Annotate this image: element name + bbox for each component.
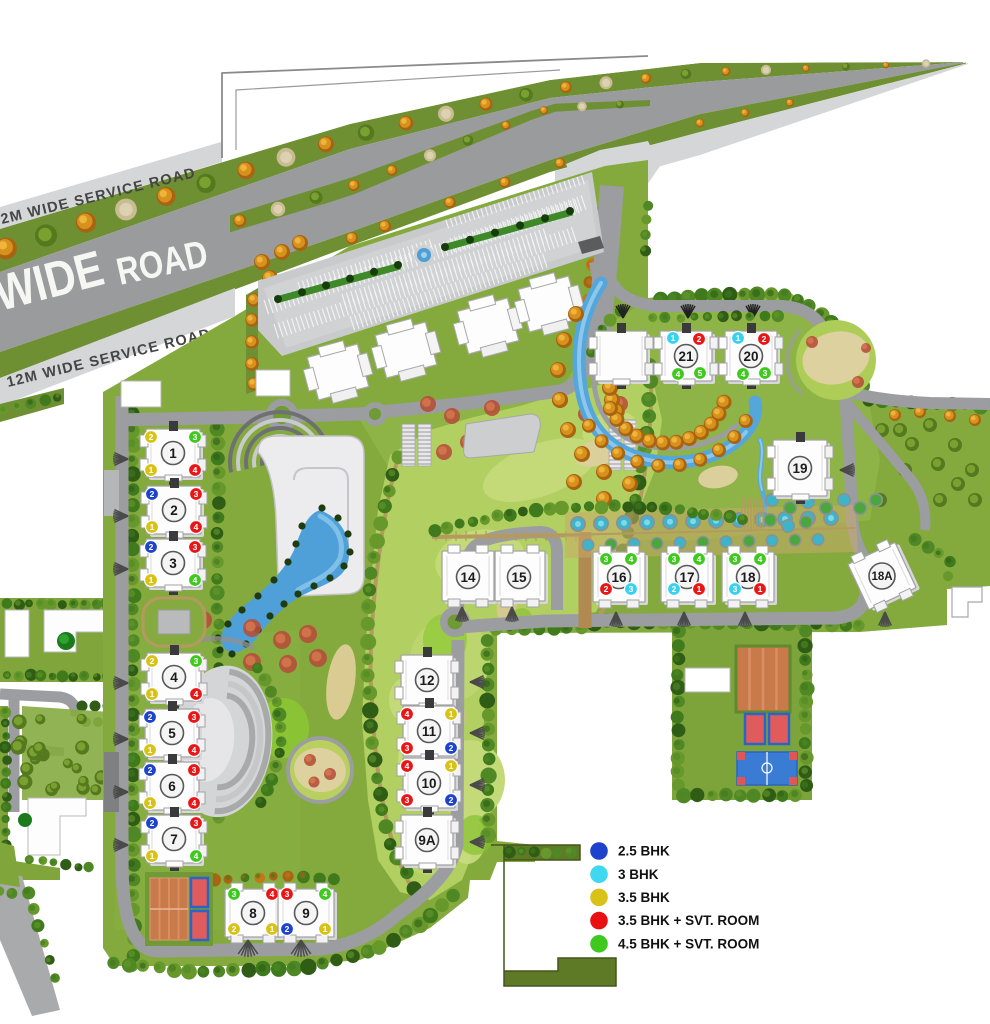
svg-text:10: 10 [421, 776, 436, 791]
svg-text:3.5 BHK + SVT. ROOM: 3.5 BHK + SVT. ROOM [618, 913, 759, 928]
svg-text:2: 2 [148, 712, 153, 722]
svg-text:1: 1 [671, 333, 676, 343]
svg-text:2: 2 [150, 489, 155, 499]
svg-text:1: 1 [758, 584, 763, 594]
svg-text:1: 1 [169, 446, 177, 461]
svg-text:1: 1 [149, 465, 154, 475]
svg-text:4: 4 [194, 851, 199, 861]
svg-text:19: 19 [792, 461, 807, 476]
svg-text:12: 12 [419, 673, 434, 688]
svg-text:20: 20 [743, 349, 758, 364]
svg-text:2: 2 [150, 656, 155, 666]
svg-text:2: 2 [150, 818, 155, 828]
svg-text:2: 2 [170, 503, 178, 518]
svg-text:3.5 BHK: 3.5 BHK [618, 890, 670, 905]
svg-text:4: 4 [192, 745, 197, 755]
svg-text:3: 3 [194, 489, 199, 499]
svg-text:2: 2 [697, 334, 702, 344]
svg-text:3: 3 [672, 554, 677, 564]
svg-text:14: 14 [460, 570, 476, 585]
svg-text:4: 4 [193, 465, 198, 475]
svg-text:3: 3 [193, 542, 198, 552]
svg-text:1: 1 [270, 924, 275, 934]
svg-text:8: 8 [249, 906, 257, 921]
svg-text:2: 2 [762, 334, 767, 344]
svg-text:4: 4 [405, 709, 410, 719]
svg-text:2: 2 [149, 432, 154, 442]
svg-text:1: 1 [148, 745, 153, 755]
svg-text:4: 4 [629, 554, 634, 564]
svg-text:9A: 9A [418, 833, 436, 848]
svg-text:3: 3 [192, 712, 197, 722]
svg-text:4: 4 [194, 689, 199, 699]
svg-text:3: 3 [169, 556, 177, 571]
svg-text:3: 3 [192, 765, 197, 775]
svg-text:4: 4 [405, 761, 410, 771]
svg-text:15: 15 [511, 570, 527, 585]
svg-text:2.5 BHK: 2.5 BHK [618, 844, 670, 859]
svg-text:1: 1 [150, 689, 155, 699]
svg-text:1: 1 [150, 522, 155, 532]
svg-text:5: 5 [698, 368, 703, 378]
svg-text:4: 4 [697, 554, 702, 564]
svg-text:1: 1 [323, 924, 328, 934]
svg-text:4: 4 [676, 369, 681, 379]
svg-text:2: 2 [672, 584, 677, 594]
svg-text:2: 2 [148, 765, 153, 775]
svg-text:18: 18 [740, 570, 756, 585]
svg-text:2: 2 [232, 924, 237, 934]
svg-text:3: 3 [232, 889, 237, 899]
svg-text:9: 9 [302, 906, 310, 921]
svg-text:6: 6 [168, 779, 176, 794]
svg-text:3: 3 [194, 656, 199, 666]
svg-text:1: 1 [736, 333, 741, 343]
svg-text:16: 16 [611, 570, 627, 585]
svg-text:21: 21 [678, 349, 694, 364]
svg-text:3: 3 [194, 818, 199, 828]
svg-text:2: 2 [285, 924, 290, 934]
svg-text:3 BHK: 3 BHK [618, 867, 659, 882]
svg-text:4: 4 [192, 798, 197, 808]
svg-text:4: 4 [323, 889, 328, 899]
svg-text:3: 3 [733, 584, 738, 594]
svg-text:4: 4 [270, 889, 275, 899]
svg-text:3: 3 [405, 795, 410, 805]
svg-text:1: 1 [449, 709, 454, 719]
svg-text:4: 4 [194, 522, 199, 532]
svg-text:1: 1 [149, 575, 154, 585]
svg-text:3: 3 [733, 554, 738, 564]
svg-text:1: 1 [697, 584, 702, 594]
svg-text:5: 5 [168, 726, 176, 741]
svg-text:3: 3 [763, 368, 768, 378]
svg-text:2: 2 [449, 743, 454, 753]
svg-text:4: 4 [758, 554, 763, 564]
svg-text:4: 4 [741, 369, 746, 379]
svg-text:2: 2 [604, 584, 609, 594]
svg-text:11: 11 [422, 724, 437, 739]
svg-text:1: 1 [449, 761, 454, 771]
svg-text:4.5 BHK + SVT. ROOM: 4.5 BHK + SVT. ROOM [618, 936, 759, 951]
svg-text:18A: 18A [871, 571, 892, 583]
svg-text:3: 3 [193, 432, 198, 442]
svg-text:7: 7 [170, 832, 178, 847]
svg-text:1: 1 [150, 851, 155, 861]
svg-text:1: 1 [148, 798, 153, 808]
svg-text:2: 2 [449, 795, 454, 805]
svg-text:3: 3 [285, 889, 290, 899]
svg-text:2: 2 [149, 542, 154, 552]
svg-text:3: 3 [629, 584, 634, 594]
svg-text:4: 4 [193, 575, 198, 585]
svg-text:3: 3 [405, 743, 410, 753]
svg-text:3: 3 [604, 554, 609, 564]
svg-text:17: 17 [679, 570, 694, 585]
svg-text:4: 4 [170, 670, 178, 685]
